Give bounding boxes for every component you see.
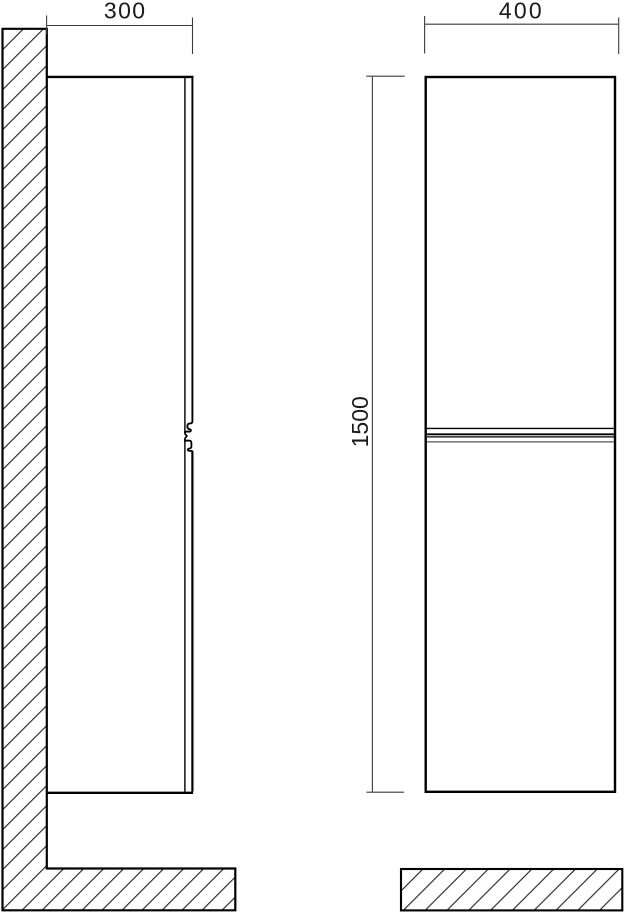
svg-text:1500: 1500: [347, 396, 373, 447]
svg-text:400: 400: [499, 0, 544, 24]
svg-text:300: 300: [104, 0, 147, 24]
